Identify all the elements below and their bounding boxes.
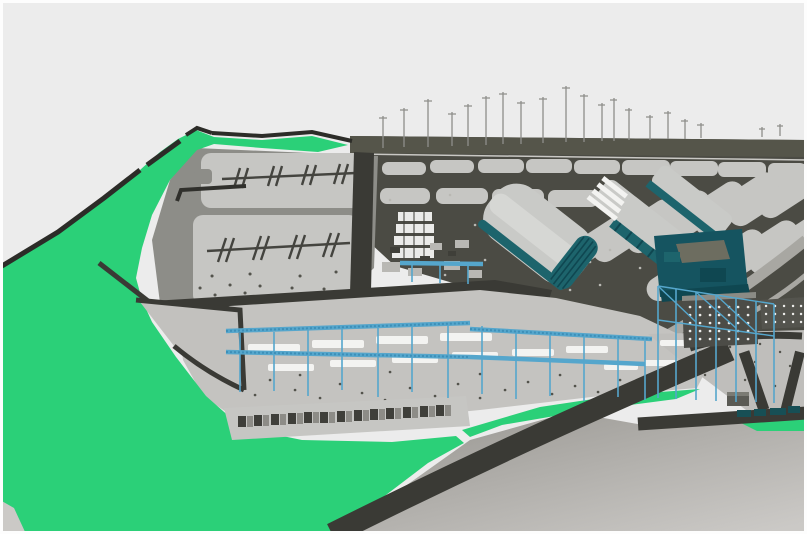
model-viewport[interactable] (0, 0, 807, 534)
powerhouse-roof (676, 240, 730, 263)
pad-notch (194, 169, 212, 184)
harbor-box-building (727, 392, 749, 406)
facade-building-small (760, 297, 807, 329)
powerhouse-teal (654, 229, 750, 302)
vertical-service-road (350, 152, 374, 293)
left-terrace-platform (152, 148, 378, 305)
